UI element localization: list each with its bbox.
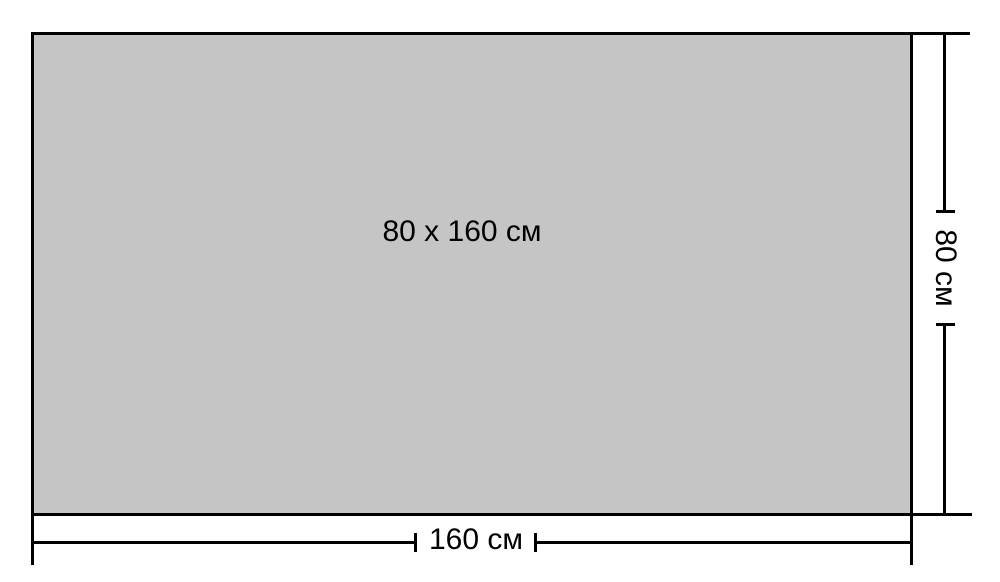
height-dimension-tick-top	[936, 210, 955, 213]
width-dimension-tick-right	[534, 533, 537, 552]
width-dimension-line-left	[31, 541, 415, 544]
height-dimension-label: 80 см	[928, 229, 962, 306]
bottom-extension-line	[910, 513, 972, 516]
left-extension-line	[31, 513, 34, 565]
dimension-diagram: 80 x 160 см 160 см 80 см	[0, 0, 1000, 582]
width-dimension-label: 160 см	[429, 523, 523, 557]
height-dimension-line-top	[943, 32, 946, 212]
width-dimension-line-right	[536, 541, 913, 544]
width-dimension-tick-left	[414, 533, 417, 552]
rectangle	[31, 32, 913, 516]
height-dimension-tick-bottom	[936, 323, 955, 326]
height-dimension-line-bottom	[943, 325, 946, 516]
right-extension-line	[910, 513, 913, 565]
rectangle-size-label: 80 x 160 см	[0, 215, 962, 249]
top-extension-line	[910, 32, 970, 35]
